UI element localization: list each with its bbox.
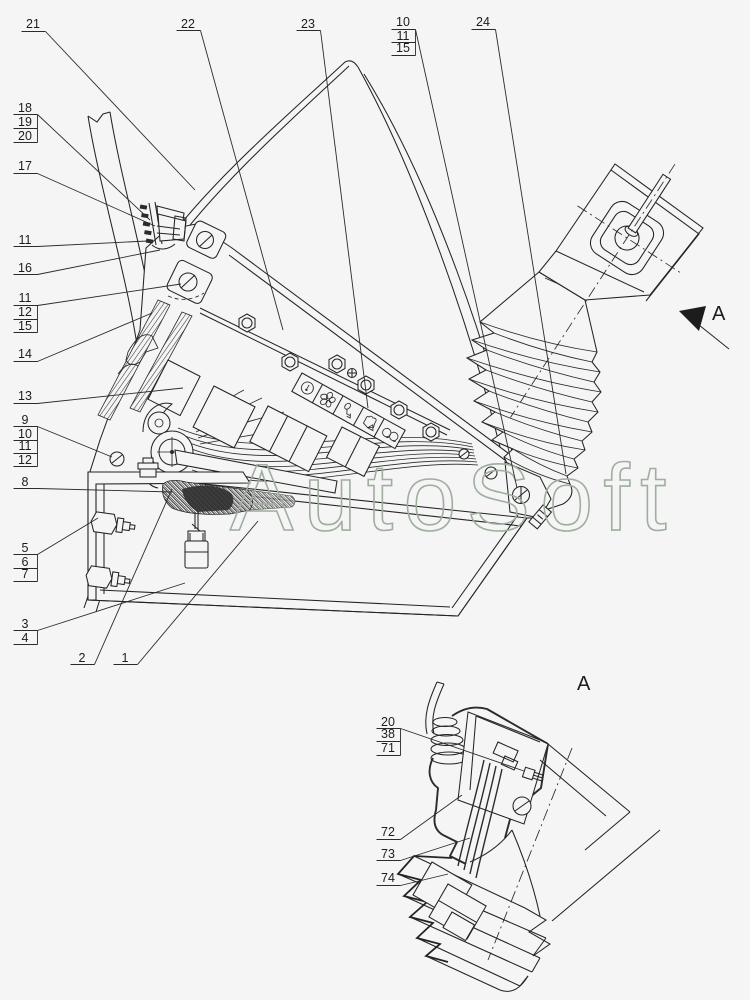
svg-text:38: 38 <box>381 727 395 741</box>
svg-text:72: 72 <box>381 825 395 839</box>
svg-text:4: 4 <box>22 631 29 645</box>
svg-text:12: 12 <box>18 305 32 319</box>
svg-text:5: 5 <box>22 541 29 555</box>
svg-text:21: 21 <box>26 17 40 31</box>
svg-text:74: 74 <box>381 871 395 885</box>
svg-text:19: 19 <box>18 115 32 129</box>
svg-text:3: 3 <box>22 617 29 631</box>
svg-text:A: A <box>712 303 726 325</box>
svg-text:15: 15 <box>18 319 32 333</box>
svg-text:17: 17 <box>18 159 32 173</box>
svg-text:AutoSoft: AutoSoft <box>230 445 677 551</box>
svg-text:18: 18 <box>18 101 32 115</box>
svg-text:10: 10 <box>396 15 410 29</box>
svg-text:A: A <box>577 673 591 695</box>
svg-text:1: 1 <box>122 651 129 665</box>
svg-text:24: 24 <box>476 15 490 29</box>
svg-text:11: 11 <box>19 233 32 247</box>
svg-text:11: 11 <box>19 439 32 453</box>
svg-text:11: 11 <box>19 291 32 305</box>
svg-text:2: 2 <box>79 651 86 665</box>
svg-text:73: 73 <box>381 847 395 861</box>
svg-text:23: 23 <box>301 17 315 31</box>
svg-text:22: 22 <box>181 17 195 31</box>
svg-text:20: 20 <box>18 129 32 143</box>
svg-text:9: 9 <box>22 413 29 427</box>
svg-text:71: 71 <box>381 741 395 755</box>
svg-text:8: 8 <box>22 475 29 489</box>
svg-text:12: 12 <box>18 453 32 467</box>
svg-text:16: 16 <box>18 261 32 275</box>
svg-text:14: 14 <box>18 347 32 361</box>
svg-text:7: 7 <box>22 567 29 581</box>
svg-text:13: 13 <box>18 389 32 403</box>
svg-text:15: 15 <box>396 41 410 55</box>
